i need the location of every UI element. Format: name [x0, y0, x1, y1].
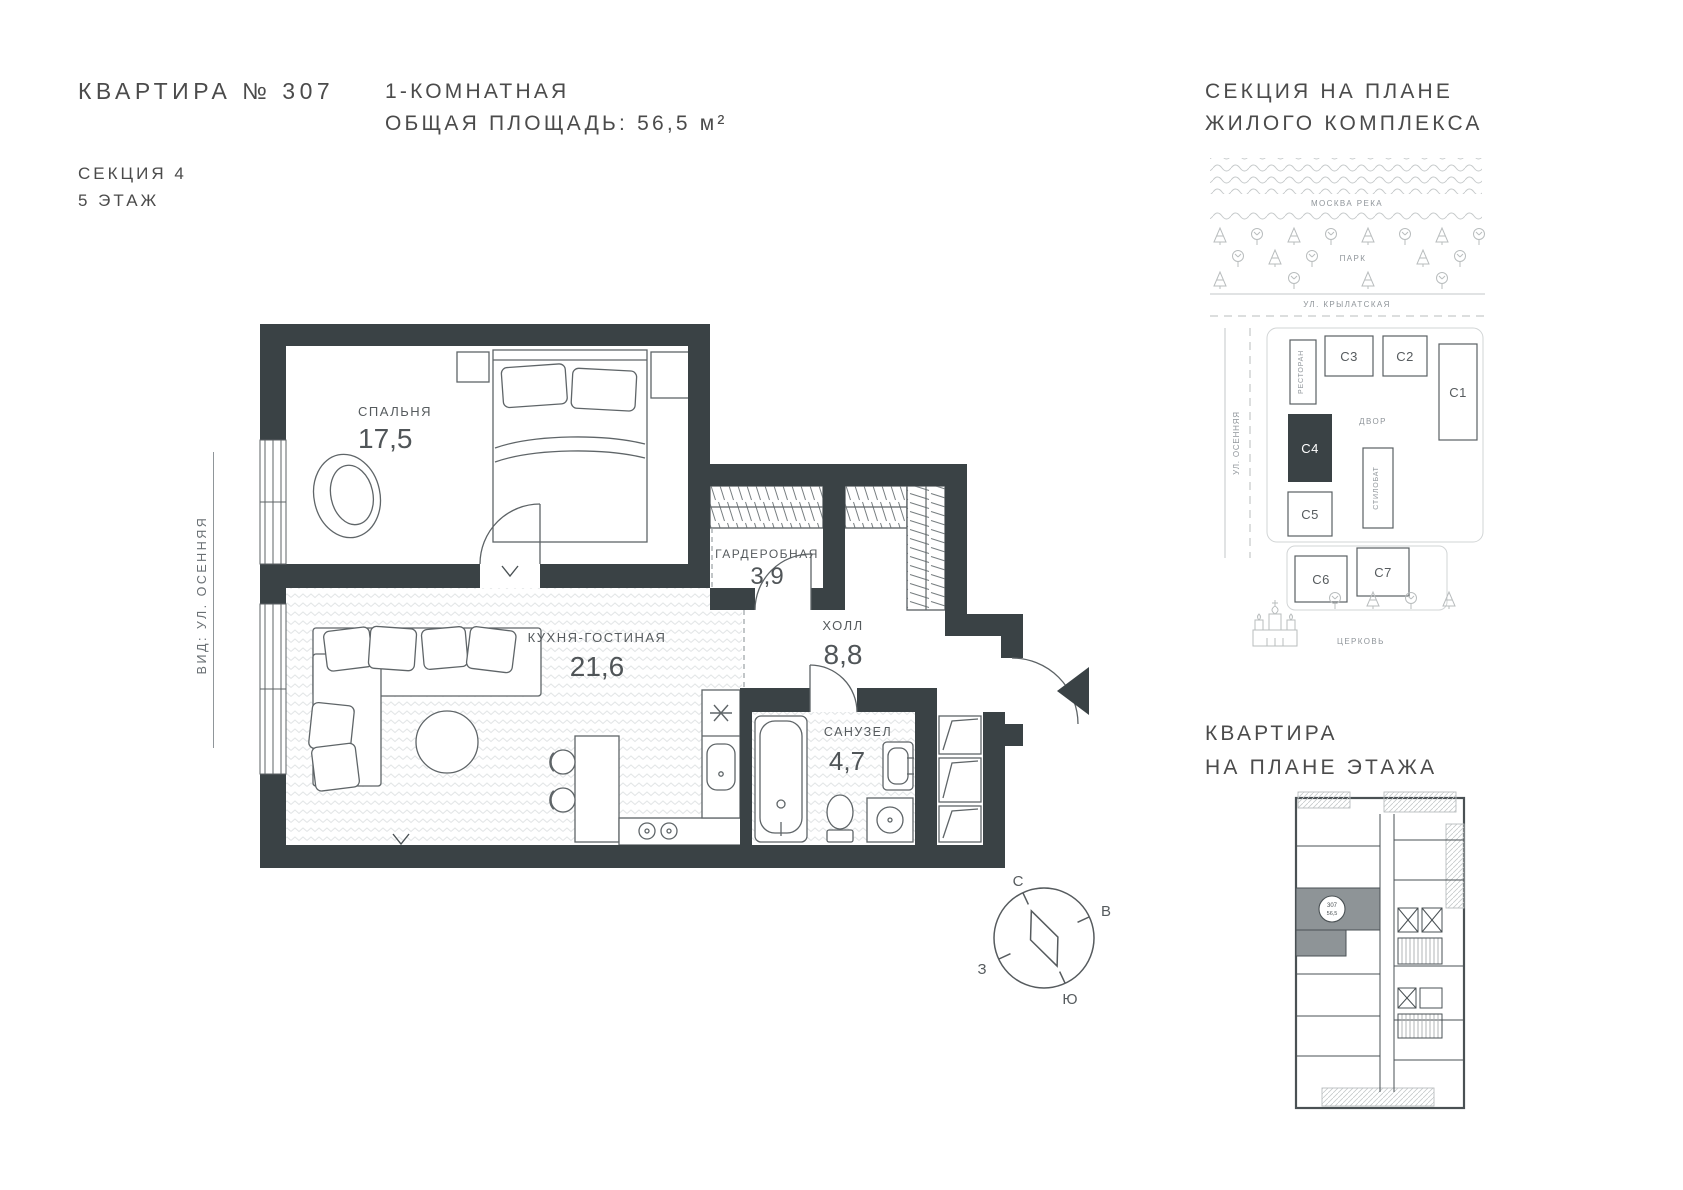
hall-area: 8,8	[824, 639, 863, 670]
complex-buildings: РЕСТОРАН С3 С2 С1 С4 С5 ДВОР СТИЛОБАТ С6…	[1267, 328, 1483, 610]
bathtub	[755, 716, 807, 842]
nightstand-right	[651, 352, 691, 398]
building-c3: С3	[1340, 349, 1358, 364]
compass-west: З	[977, 961, 986, 978]
hall-name: ХОЛЛ	[822, 618, 863, 633]
entrance-arrow	[1057, 667, 1089, 715]
stylobate-label: СТИЛОБАТ	[1373, 466, 1380, 509]
apartment-badge	[1319, 896, 1345, 922]
coffee-table	[416, 711, 478, 773]
compass-needle	[978, 872, 1111, 1005]
washing-machine	[867, 798, 913, 842]
wardrobe-area: 3,9	[750, 563, 783, 590]
toilet	[827, 795, 853, 842]
building-c4: С4	[1301, 441, 1319, 456]
building-c2: С2	[1396, 349, 1414, 364]
apartment-title: КВАРТИРА № 307	[78, 78, 334, 105]
river-label: МОСКВА РЕКА	[1311, 199, 1383, 208]
street-osennyaya: УЛ. ОСЕННЯЯ	[1225, 328, 1250, 558]
kitchen-counter-sink	[702, 690, 740, 818]
bed	[493, 350, 647, 542]
wardrobe-name: ГАРДЕРОБНАЯ	[715, 547, 819, 561]
church-label: ЦЕРКОВЬ	[1337, 637, 1385, 646]
windows	[260, 440, 286, 774]
bathroom-sink	[883, 742, 914, 790]
rooms-count-label: 1-КОМНАТНАЯ	[385, 76, 569, 108]
kitchen-area: 21,6	[570, 651, 625, 682]
section-label: СЕКЦИЯ 4	[78, 160, 187, 187]
floorplan-page: КВАРТИРА № 307 СЕКЦИЯ 4 5 ЭТАЖ 1-КОМНАТН…	[0, 0, 1683, 1190]
street-krylatskaya: УЛ. КРЫЛАТСКАЯ	[1210, 294, 1485, 316]
bathroom-name: САНУЗЕЛ	[824, 725, 892, 739]
church: ЦЕРКОВЬ	[1253, 600, 1385, 646]
bedroom-name: СПАЛЬНЯ	[358, 404, 432, 419]
mini-plan-title-1: КВАРТИРА	[1205, 718, 1338, 750]
floor-label: 5 ЭТАЖ	[78, 187, 159, 214]
site-plan-title-2: ЖИЛОГО КОМПЛЕКСА	[1205, 108, 1483, 140]
street-left-label: УЛ. ОСЕННЯЯ	[1232, 411, 1241, 475]
total-area-label: ОБЩАЯ ПЛОЩАДЬ: 56,5 м²	[385, 108, 728, 140]
bathroom-area: 4,7	[829, 746, 865, 776]
compass: С В Ю З	[969, 863, 1119, 1013]
river: МОСКВА РЕКА	[1210, 158, 1482, 224]
kitchen-counter-hob	[619, 818, 742, 845]
kitchen-name: КУХНЯ-ГОСТИНАЯ	[528, 630, 667, 645]
bedroom-area: 17,5	[358, 423, 413, 454]
building-c7: С7	[1374, 565, 1392, 580]
complex-site-plan: МОСКВА РЕКА ПАРК УЛ. КРЫЛАТСКАЯ УЛ. ОСЕН…	[1195, 148, 1495, 660]
mini-plan-title-2: НА ПЛАНЕ ЭТАЖА	[1205, 752, 1437, 784]
armchair	[306, 448, 388, 544]
badge-number: 307	[1327, 903, 1338, 909]
kitchen-island	[575, 736, 619, 842]
nightstand-left	[457, 352, 489, 382]
hall-closet	[939, 716, 981, 842]
building-c1: С1	[1449, 385, 1467, 400]
building-c5: С5	[1301, 507, 1319, 522]
restaurant-label: РЕСТОРАН	[1298, 350, 1305, 394]
site-plan-title-1: СЕКЦИЯ НА ПЛАНЕ	[1205, 76, 1453, 108]
badge-area: 56,5	[1327, 911, 1338, 917]
park-label: ПАРК	[1340, 254, 1367, 263]
compass-north: С	[1013, 873, 1024, 890]
courtyard-label: ДВОР	[1359, 417, 1387, 426]
apartment-floorplan: СПАЛЬНЯ 17,5 ГАРДЕРОБНАЯ 3,9 КУХНЯ-ГОСТИ…	[195, 312, 1115, 892]
compass-east: В	[1101, 903, 1111, 920]
park: ПАРК	[1214, 228, 1485, 289]
building-c6: С6	[1312, 572, 1330, 587]
street-top-label: УЛ. КРЫЛАТСКАЯ	[1303, 300, 1391, 309]
compass-south: Ю	[1062, 991, 1077, 1008]
floor-level-plan: 307 56,5	[1288, 788, 1473, 1118]
